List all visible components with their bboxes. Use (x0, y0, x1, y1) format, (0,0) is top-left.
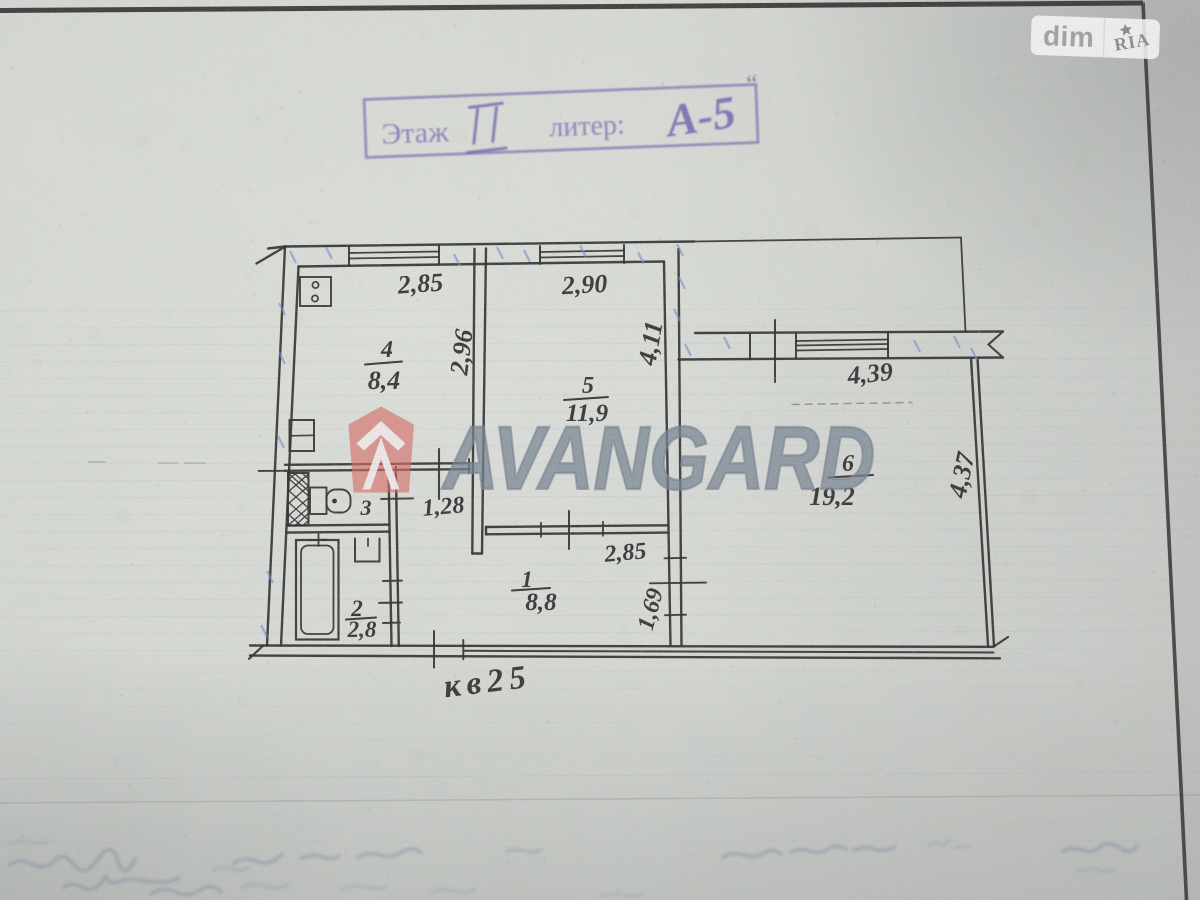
svg-text:3: 3 (360, 495, 372, 520)
svg-text:8,4: 8,4 (368, 366, 401, 395)
svg-text:2,90: 2,90 (560, 269, 608, 300)
svg-text:dim: dim (1043, 20, 1095, 53)
svg-text:8,8: 8,8 (525, 589, 557, 616)
svg-text:5: 5 (582, 373, 594, 399)
svg-text:2,96: 2,96 (444, 328, 478, 378)
svg-text:2,85: 2,85 (602, 538, 647, 568)
svg-text:А-5: А-5 (660, 86, 739, 147)
svg-text:4: 4 (380, 337, 393, 363)
svg-text:AVANGARD: AVANGARD (441, 409, 875, 509)
svg-text:2,85: 2,85 (396, 267, 444, 299)
svg-text:Этаж: Этаж (381, 115, 450, 151)
svg-text:2,8: 2,8 (347, 617, 377, 642)
svg-text:“: “ (743, 69, 759, 99)
